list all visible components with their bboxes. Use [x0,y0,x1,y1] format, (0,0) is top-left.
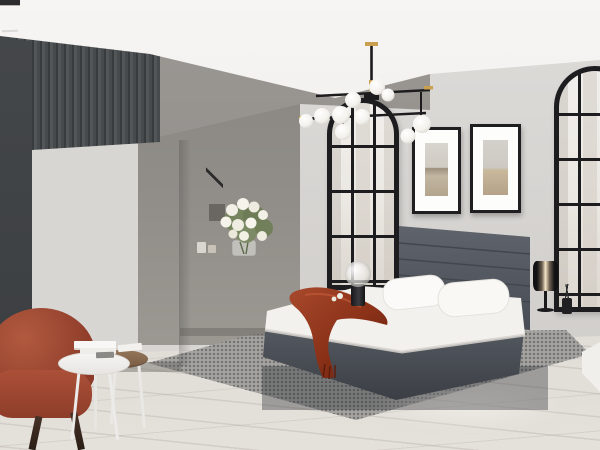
framed-picture-beach-2 [470,124,521,213]
arched-window-right [554,66,600,312]
arrow-art [206,167,223,188]
side-table-white-leg [94,374,97,430]
armchair-leg [29,416,43,450]
nightstand-base [0,0,20,5]
dresser-decor [197,242,206,253]
framed-picture-beach-1 [412,127,461,214]
table-lamp-base [537,308,554,312]
drawer-handle [0,6,13,8]
nightstand-tumba [0,0,20,5]
table-lamp-shade [533,261,558,291]
picture-photo [483,140,508,195]
window-pane [559,71,600,307]
table-device [96,352,114,359]
diffuser-sticks [563,284,571,299]
window-pane [332,103,394,285]
dresser-floor-shadow [180,328,270,336]
armchair [0,304,100,450]
globe-lamp-base [351,284,365,306]
picture-photo [425,143,448,196]
bed-floor-shadow [262,366,548,410]
table-paper [118,343,143,352]
side-table-white-top [58,352,130,375]
diffuser-bottle [562,298,572,314]
globe-lamp [345,261,371,287]
dresser-decor [208,245,216,253]
product-photo-stage: Шкаф 3дверный Комод Тумба [0,0,600,450]
small-frame-arrow-art [201,162,228,193]
